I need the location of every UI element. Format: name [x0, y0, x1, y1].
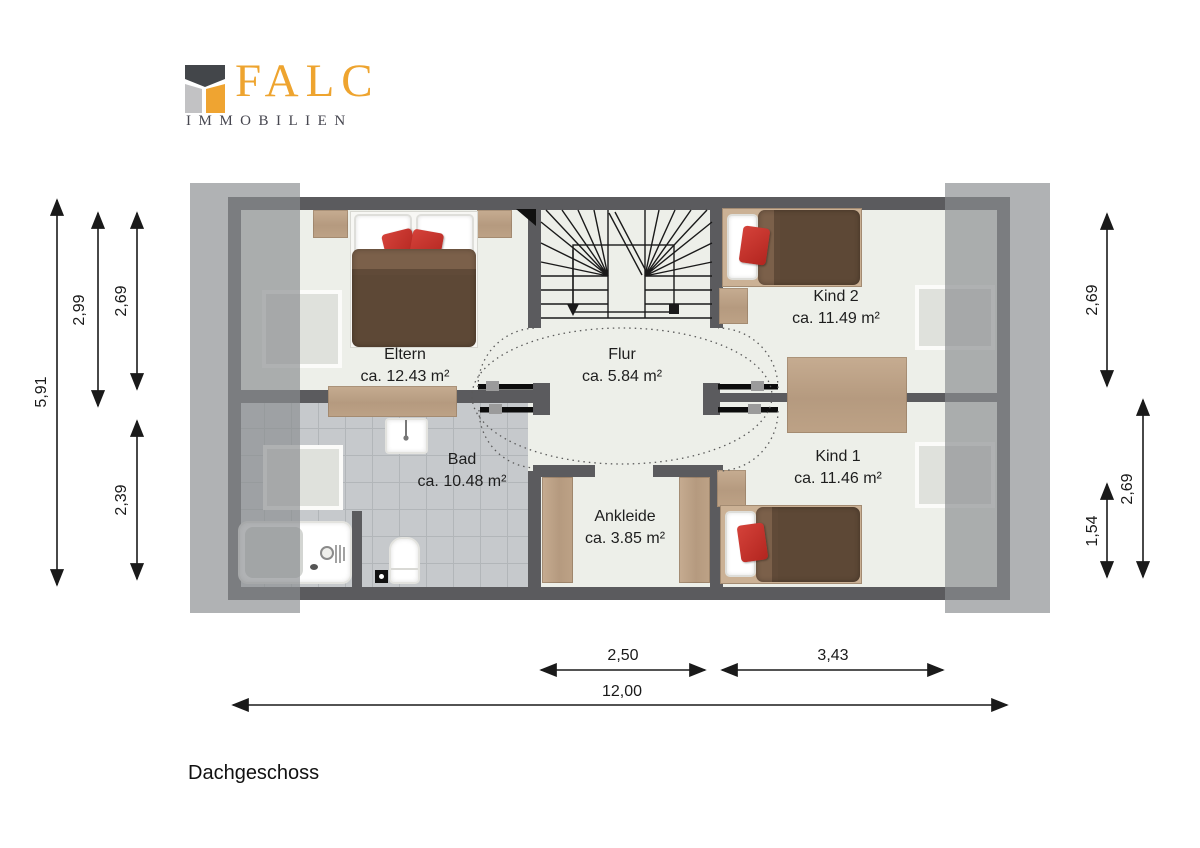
dimension-label: 1,54 [1084, 515, 1101, 546]
stair-start-marker [669, 304, 679, 314]
doors [478, 381, 778, 414]
fixture-details [310, 420, 409, 570]
swing-arc-eltern [478, 328, 537, 387]
dimension-label: 3,43 [817, 647, 848, 664]
swing-arc-kind2 [718, 328, 778, 388]
stair-arrow-head [567, 304, 579, 316]
dimension-label: 2,69 [113, 285, 130, 316]
dimension-label: 2,69 [1084, 284, 1101, 315]
dimension-label: 2,50 [607, 647, 638, 664]
dimension-label: 2,69 [1119, 473, 1136, 504]
swing-arc-kind1 [718, 411, 778, 471]
tub-faucet [321, 547, 333, 559]
stairs [541, 210, 712, 318]
door-handle [748, 404, 761, 414]
plan-linework: 5,91 2,99 2,69 2,39 2,69 2,69 1,54 2,50 … [0, 0, 1200, 848]
corner-marker-triangle [516, 209, 536, 226]
floor-plan-page: FALC IMMOBILIEN [0, 0, 1200, 848]
door-handle [489, 404, 502, 414]
dimension-label: 12,00 [602, 683, 642, 700]
headroom-line [472, 328, 772, 464]
door-handle [751, 381, 764, 391]
dimension-label: 5,91 [33, 376, 50, 407]
dimension-label: 2,99 [71, 294, 88, 325]
dimension-label: 2,39 [113, 484, 130, 515]
swing-arcs [472, 328, 778, 471]
door-handle [486, 381, 499, 391]
tub-drain [310, 564, 318, 570]
door-kind2 [718, 384, 778, 390]
swing-arc-bad [479, 410, 537, 468]
door-bad [480, 407, 533, 413]
